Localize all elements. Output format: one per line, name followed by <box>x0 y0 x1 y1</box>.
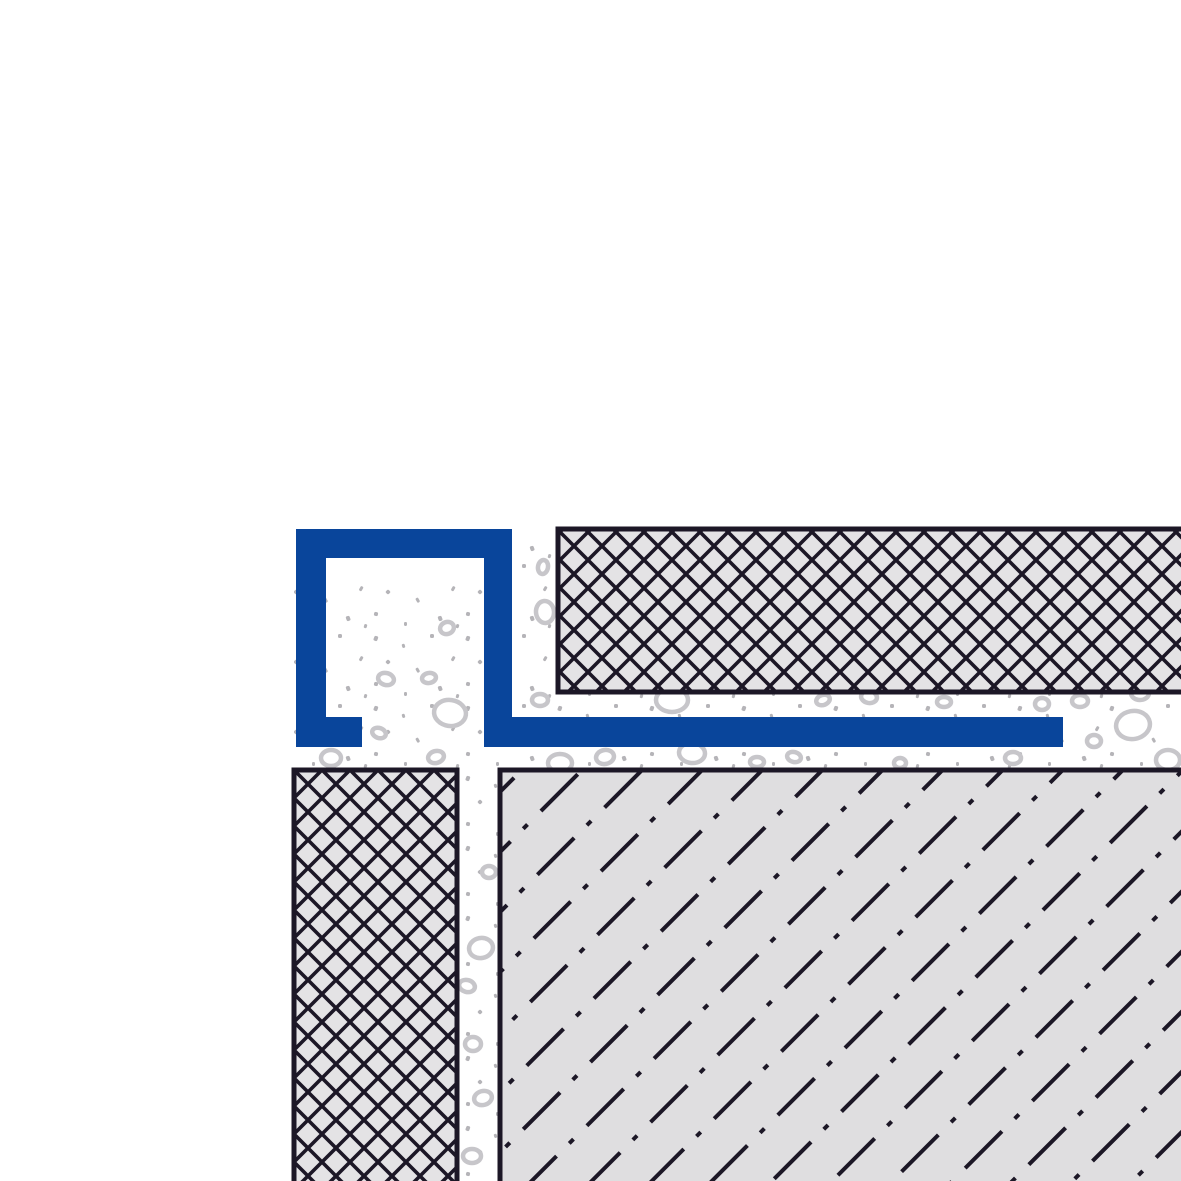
aggregate-stone <box>467 936 494 960</box>
aggregate-stone <box>321 750 341 766</box>
aggregate-stone <box>371 726 388 740</box>
aggregate-stone <box>750 757 764 767</box>
aggregate-stone <box>438 620 455 636</box>
profile-cross-section-diagram <box>0 0 1181 1181</box>
aggregate-stone <box>432 698 467 728</box>
aggregate-stone <box>1005 752 1021 764</box>
aggregate-stone <box>472 1089 493 1107</box>
aggregate-stone <box>458 978 477 994</box>
aggregate-stone <box>482 866 496 878</box>
aggregate-stone <box>377 671 396 687</box>
aggregate-stone <box>894 758 906 768</box>
aggregate-stone <box>1156 750 1180 770</box>
aggregate-stone <box>595 749 615 766</box>
aggregate-stone <box>937 697 951 707</box>
aggregate-stone <box>815 693 832 707</box>
aggregate-stone <box>421 672 437 684</box>
substrate <box>500 770 1181 1181</box>
aggregate-stone <box>532 694 548 706</box>
aggregate-stone <box>786 750 802 763</box>
aggregate-stone <box>537 559 549 575</box>
aggregate-stone <box>463 1149 481 1163</box>
diagram-canvas <box>0 0 1181 1181</box>
tile-left <box>294 770 457 1181</box>
tile-top <box>558 529 1181 692</box>
aggregate-stone <box>535 600 555 623</box>
aggregate-stone <box>1072 695 1088 707</box>
aggregate-stone <box>1035 698 1049 710</box>
aggregate-stone <box>1087 735 1101 747</box>
aggregate-stone <box>427 749 446 765</box>
aggregate-stone <box>465 1037 481 1051</box>
